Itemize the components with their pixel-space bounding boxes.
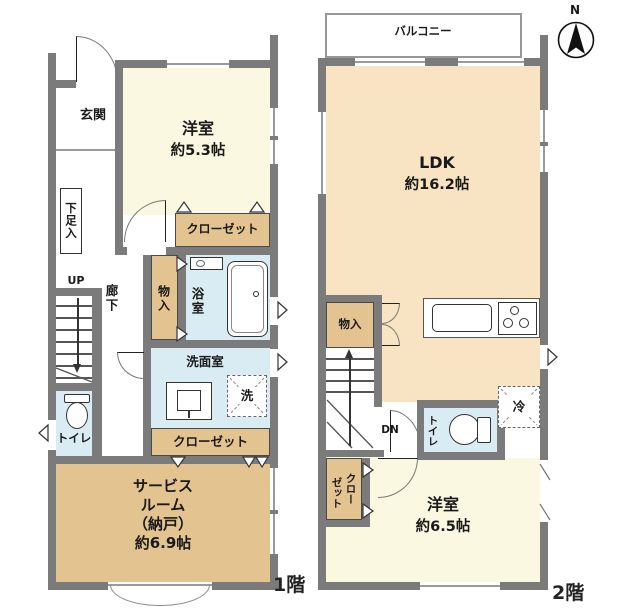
wall-segment — [92, 383, 102, 463]
entrance-step-line — [56, 149, 115, 151]
service-room-line1: サービス — [133, 477, 193, 496]
label-washroom: 洗面室 — [166, 353, 244, 369]
window-line — [543, 146, 545, 172]
closet-door-triangle-icon — [242, 456, 270, 468]
label-closet-f2-col2: ゼット — [330, 469, 344, 517]
label-storage-f2: 物入 — [328, 316, 372, 333]
window-line — [458, 61, 524, 63]
wall-segment — [326, 450, 384, 457]
toilet-bowl — [449, 414, 480, 445]
bathtub-drain — [253, 291, 259, 297]
wall-segment — [92, 288, 102, 390]
wall-segment — [48, 53, 56, 590]
stairs-direction-line — [77, 298, 79, 366]
stove-burner — [510, 306, 519, 315]
label-bedroom-name: 洋室 — [158, 119, 238, 139]
label-closet-f2-col1: クロー — [344, 463, 358, 515]
label-storage-f1: 物入 — [156, 280, 172, 318]
label-ldk-size: 約16.2帖 — [392, 177, 482, 195]
storage-door-triangle-icon — [176, 256, 188, 272]
label-hallway: 廊下 — [103, 277, 119, 319]
vent-window-triangle-icon — [277, 301, 289, 319]
stove-burner — [503, 318, 513, 328]
label-balcony: バルコニー — [353, 25, 493, 39]
window-line — [273, 514, 275, 554]
entrance-door-swing — [76, 36, 118, 82]
vent-window-triangle-icon — [277, 353, 289, 371]
arrow-up-icon — [345, 349, 353, 358]
storage-door-triangle-icon — [176, 326, 188, 342]
wall-segment — [374, 295, 382, 407]
bath-faucet — [196, 260, 205, 267]
window-line — [273, 140, 275, 164]
window-line — [273, 108, 275, 136]
room-bedroom-5_3 — [123, 68, 270, 215]
wall-segment — [48, 80, 76, 88]
label-closet-bottom: クローゼット — [153, 429, 268, 454]
toilet-tank — [477, 417, 491, 443]
toilet-bowl — [66, 402, 88, 429]
floor2-label: 2階 — [552, 578, 584, 605]
label-bedroom2-name: 洋室 — [403, 495, 483, 515]
bathtub-inner-line — [231, 265, 264, 333]
wall-segment — [115, 60, 123, 255]
wall-segment — [417, 400, 498, 408]
floor1-label: 1階 — [273, 570, 305, 597]
service-room-line3: （納戸） — [133, 515, 193, 534]
corner-window-lines — [538, 462, 552, 522]
closet-door-triangle-icon — [249, 201, 265, 213]
washroom-door-swing — [117, 352, 144, 379]
wall-segment — [143, 348, 151, 458]
label-toilet-f2: トイレ — [426, 409, 440, 453]
bow-window-arc — [110, 585, 210, 606]
service-room-line4: 約6.9帖 — [135, 534, 192, 553]
closet-door-triangle-icon — [362, 462, 374, 478]
window-line — [420, 585, 500, 587]
window-line — [543, 110, 545, 142]
window-line — [355, 61, 425, 63]
wall-segment — [166, 247, 278, 255]
arrow-down-icon — [73, 364, 81, 373]
vent-window-triangle-icon — [37, 424, 49, 442]
vent-window-triangle-icon — [547, 348, 559, 366]
label-stairs-up: UP — [60, 274, 92, 287]
closet-door-triangle-icon — [362, 503, 374, 519]
window-line — [273, 468, 275, 510]
label-refrigerator: 冷 — [506, 396, 532, 416]
wall-segment — [417, 452, 505, 460]
label-bedroom2-size: 約6.5帖 — [398, 519, 488, 537]
wall-segment — [326, 520, 370, 527]
window-line — [321, 112, 323, 194]
floor-strip — [505, 428, 540, 458]
window-line — [167, 63, 229, 65]
label-shoe-cabinet: 下足入 — [62, 192, 80, 250]
label-service-room: サービス ルーム （納戸） 約6.9帖 — [56, 470, 270, 560]
label-closet-top: クローゼット — [177, 214, 268, 245]
compass-north-label: N — [567, 3, 583, 17]
wall-segment — [115, 247, 127, 255]
label-ldk-name: LDK — [397, 153, 477, 173]
label-stairs-down: DN — [378, 424, 402, 437]
closet-door-triangle-icon — [170, 456, 186, 468]
wall-segment — [143, 255, 151, 340]
label-entrance: 玄関 — [70, 108, 116, 124]
compass-icon — [556, 16, 596, 62]
label-bathroom: 浴室 — [189, 281, 205, 321]
stairs-direction-line — [349, 356, 351, 446]
floor-plan-canvas: 玄関 洋室 約5.3帖 クローゼット 下足入 UP 廊下 物入 浴室 洗面室 洗… — [0, 0, 640, 614]
bath-counter — [190, 257, 223, 270]
service-room-line2: ルーム — [141, 496, 186, 515]
label-washer: 洗 — [234, 387, 260, 404]
label-bedroom-size: 約5.3帖 — [156, 143, 240, 161]
vanity-sink — [177, 390, 201, 411]
closet-door-triangle-icon — [176, 201, 192, 213]
vanity-tap — [188, 411, 190, 418]
stove-burner — [519, 318, 529, 328]
label-toilet-f1: トイレ — [52, 431, 96, 446]
wall-segment — [143, 340, 278, 348]
kitchen-sink — [432, 304, 492, 332]
